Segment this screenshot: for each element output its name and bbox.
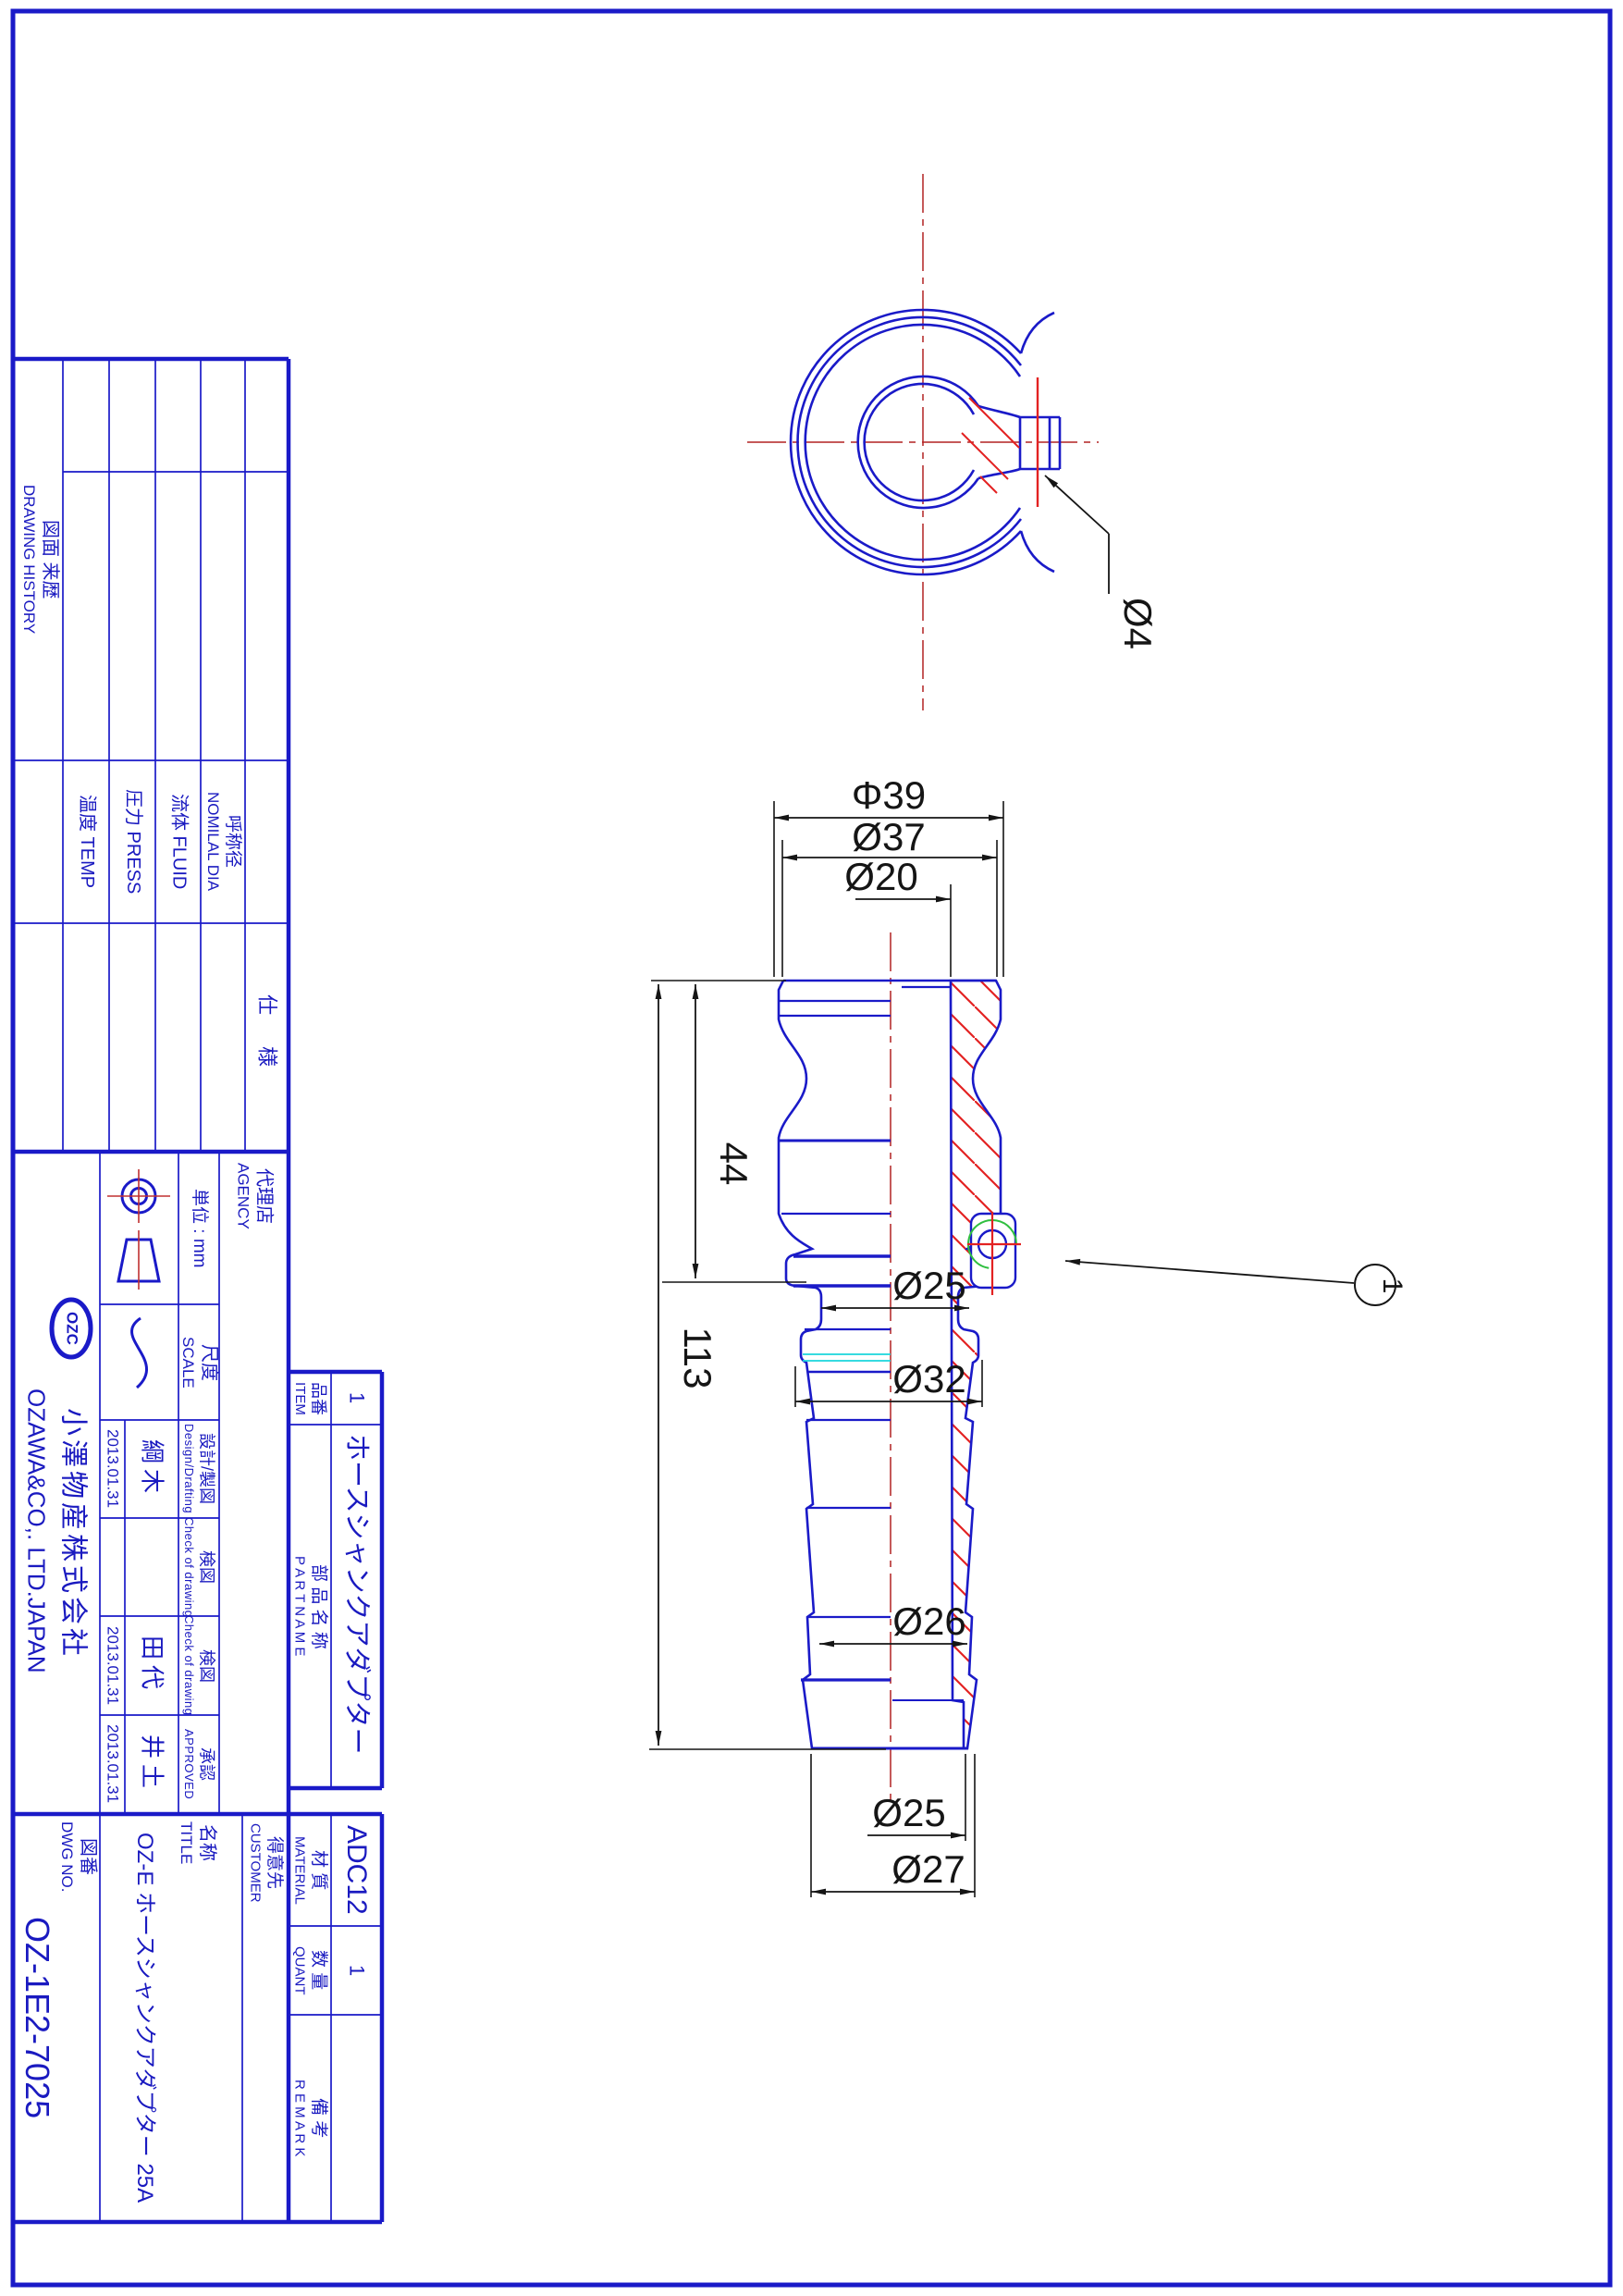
pin-hole-detail bbox=[965, 1212, 1021, 1295]
balloon-number: 1 bbox=[1377, 1278, 1408, 1294]
material: ADC12 bbox=[340, 1825, 373, 1915]
spec-header-label: 仕 様 bbox=[255, 994, 279, 1080]
agency-cell: 代理店 AGENCY bbox=[219, 1152, 289, 1799]
company-logo: OZC bbox=[52, 1300, 91, 1357]
spec-press-cell: 圧力 PRESS bbox=[109, 760, 155, 923]
material-label-jp: 材 質 bbox=[308, 1836, 328, 1905]
company-name-jp-cell: 小澤物産株式会社 bbox=[54, 1367, 92, 1700]
approved-date-cell: 2013.01.31 bbox=[100, 1715, 125, 1813]
agency-label-jp: 代理店 bbox=[252, 1163, 275, 1229]
spec-header-cell: 仕 様 bbox=[245, 923, 289, 1152]
partname-label-cell: 部 品 名 称 P A R T N A M E bbox=[289, 1425, 331, 1788]
part-name: ホースシャンクアダプター bbox=[340, 1434, 372, 1755]
drawing-title: OZ-E ホースシャンクアダプター 25A bbox=[131, 1833, 157, 2203]
history-label-jp: 図面 来歴 bbox=[38, 485, 60, 634]
item-label-en: ITEM bbox=[292, 1382, 309, 1415]
dim-len-113: 113 bbox=[676, 1327, 719, 1389]
dim-tail-27: Ø27 bbox=[891, 1847, 965, 1891]
dim-tail-25: Ø25 bbox=[872, 1791, 945, 1834]
scale-label-en: SCALE bbox=[178, 1337, 197, 1389]
spec-nominal-en: NOMILAL DIA bbox=[203, 792, 222, 891]
check2-name: 田代 bbox=[138, 1636, 166, 1695]
remark-label-en: R E M A R K bbox=[291, 2080, 308, 2156]
title-value-cell: OZ-E ホースシャンクアダプター 25A bbox=[117, 1814, 172, 2222]
quant-value-cell: 1 bbox=[331, 1926, 382, 2015]
spec-fluid-cell: 流体 FLUID bbox=[155, 760, 201, 923]
material-label-en: MATERIAL bbox=[291, 1836, 308, 1905]
history-label-cell: 図面 来歴 DRAWING HISTORY bbox=[17, 359, 63, 760]
dimension-lines bbox=[649, 801, 1354, 1897]
item-value-cell: 1 bbox=[331, 1372, 382, 1425]
partname-label-en: P A R T N A M E bbox=[291, 1556, 308, 1656]
design-date-cell: 2013.01.31 bbox=[100, 1420, 125, 1518]
front-view: Φ39 Ø37 Ø20 44 113 Ø25 Ø32 Ø26 Ø25 Ø27 1 bbox=[649, 773, 1408, 1897]
remark-label-jp: 備 考 bbox=[308, 2080, 328, 2156]
spec-temp-label: 温度 TEMP bbox=[75, 795, 97, 888]
company-logo-text: OZC bbox=[64, 1312, 81, 1345]
check1-label-en: Check of drawing bbox=[182, 1517, 196, 1617]
scale-nts-icon bbox=[132, 1318, 147, 1388]
item-label-jp: 品番 bbox=[308, 1382, 327, 1415]
dim-collar-32: Ø32 bbox=[892, 1357, 965, 1401]
scale-cell: 尺度 SCALE bbox=[178, 1304, 219, 1420]
check2-name-cell: 田代 bbox=[125, 1616, 178, 1715]
spec-nominal-cell: 呼称径 NOMILAL DIA bbox=[201, 760, 245, 923]
dim-od-37: Ø37 bbox=[852, 815, 925, 858]
check2-label-cell: 検図 Check of drawing bbox=[178, 1616, 219, 1715]
unit-cell: 単位 : mm bbox=[178, 1152, 219, 1304]
dwg-label-jp: 図番 bbox=[76, 1821, 98, 1893]
dim-bore-20: Ø20 bbox=[844, 855, 917, 898]
company-name-en-cell: OZAWA&CO,. LTD.JAPAN bbox=[18, 1290, 54, 1771]
projection-symbol-icon bbox=[107, 1169, 170, 1290]
design-label-cell: 設計/製図 Design/Drafting bbox=[178, 1420, 219, 1518]
dim-barb-26: Ø26 bbox=[892, 1599, 965, 1643]
design-name-cell: 綱木 bbox=[125, 1420, 178, 1518]
check2-label-en: Check of drawing bbox=[182, 1615, 196, 1715]
dwg-label-en: DWG NO. bbox=[57, 1821, 76, 1893]
outline-left-profile bbox=[779, 981, 821, 1748]
dim-len-44: 44 bbox=[712, 1142, 756, 1186]
dimension-labels: Φ39 Ø37 Ø20 44 113 Ø25 Ø32 Ø26 Ø25 Ø27 bbox=[676, 773, 966, 1891]
approved-date: 2013.01.31 bbox=[103, 1724, 121, 1803]
check1-label-jp: 検図 bbox=[196, 1517, 215, 1617]
partname-label-jp: 部 品 名 称 bbox=[308, 1556, 328, 1656]
check1-label-cell: 検図 Check of drawing bbox=[178, 1518, 219, 1616]
title-label-en: TITLE bbox=[177, 1821, 195, 1864]
spec-nominal-jp: 呼称径 bbox=[222, 792, 242, 891]
drawing-sheet: OZC bbox=[0, 0, 1623, 2296]
approved-label-jp: 承認 bbox=[196, 1729, 215, 1799]
dim-pin-hole: Ø4 bbox=[1116, 598, 1160, 649]
remark-label-cell: 備 考 R E M A R K bbox=[289, 2015, 331, 2222]
design-label-en: Design/Drafting bbox=[182, 1424, 196, 1513]
item-number: 1 bbox=[345, 1392, 369, 1403]
history-label-en: DRAWING HISTORY bbox=[19, 485, 38, 634]
title-label-jp: 名称 bbox=[195, 1821, 217, 1864]
spec-temp-cell: 温度 TEMP bbox=[63, 760, 109, 923]
company-name-jp: 小澤物産株式会社 bbox=[56, 1408, 89, 1660]
quant-label-jp: 数 量 bbox=[308, 1946, 328, 1995]
agency-label-en: AGENCY bbox=[234, 1163, 252, 1229]
accent-lines bbox=[803, 1354, 891, 1361]
customer-label-jp: 得意先 bbox=[264, 1823, 284, 1903]
design-label-jp: 設計/製図 bbox=[196, 1424, 215, 1513]
material-label-cell: 材 質 MATERIAL bbox=[289, 1814, 331, 1926]
scale-label-jp: 尺度 bbox=[197, 1337, 219, 1389]
top-view: Ø4 bbox=[747, 174, 1160, 710]
spec-fluid-label: 流体 FLUID bbox=[167, 794, 190, 889]
partname-value-cell: ホースシャンクアダプター bbox=[331, 1425, 382, 1788]
item-label-cell: 品番 ITEM bbox=[289, 1372, 331, 1425]
unit-label: 単位 : mm bbox=[189, 1189, 209, 1268]
check2-date-cell: 2013.01.31 bbox=[100, 1616, 125, 1715]
dim-neck-25: Ø25 bbox=[892, 1264, 965, 1307]
customer-cell: 得意先 CUSTOMER bbox=[242, 1814, 289, 2222]
approved-label-cell: 承認 APPROVED bbox=[178, 1715, 219, 1813]
dwg-label-cell: 図番 DWG NO. bbox=[55, 1814, 100, 1953]
material-value-cell: ADC12 bbox=[331, 1814, 382, 1926]
design-name: 綱木 bbox=[138, 1439, 166, 1499]
approved-label-en: APPROVED bbox=[182, 1729, 196, 1799]
approved-name-cell: 井土 bbox=[125, 1715, 178, 1813]
company-name-en: OZAWA&CO,. LTD.JAPAN bbox=[22, 1389, 51, 1673]
title-label-cell: 名称 TITLE bbox=[172, 1814, 222, 1934]
quant-label-en: QUANT bbox=[291, 1946, 308, 1995]
quantity: 1 bbox=[345, 1965, 369, 1976]
design-date: 2013.01.31 bbox=[103, 1429, 121, 1508]
check2-date: 2013.01.31 bbox=[103, 1626, 121, 1705]
dwg-value-cell: OZ-1E2-7025 bbox=[18, 1814, 55, 2222]
customer-label-en: CUSTOMER bbox=[247, 1823, 264, 1903]
approved-name: 井土 bbox=[138, 1734, 166, 1794]
dwg-number: OZ-1E2-7025 bbox=[18, 1917, 56, 2118]
quant-label-cell: 数 量 QUANT bbox=[289, 1926, 331, 2015]
balloon-1: 1 bbox=[1355, 1265, 1408, 1305]
dim-od-39: Φ39 bbox=[852, 773, 926, 817]
spec-press-label: 圧力 PRESS bbox=[121, 789, 143, 894]
check2-label-jp: 検図 bbox=[196, 1615, 215, 1715]
